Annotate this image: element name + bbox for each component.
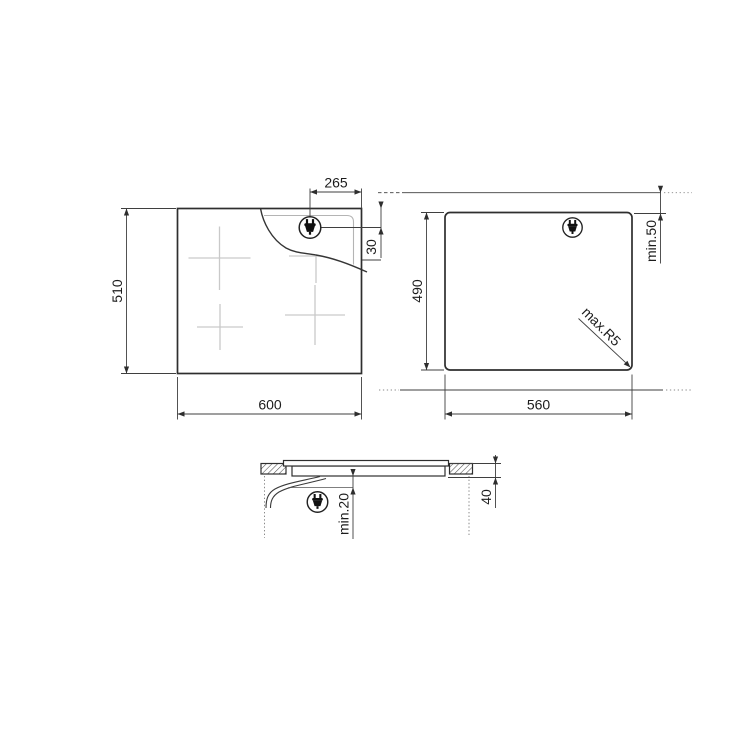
dim-label-min50: min.50 xyxy=(643,220,659,262)
dim-label-600: 600 xyxy=(258,397,282,413)
dim-label-490: 490 xyxy=(409,279,425,303)
power-plug-icon xyxy=(307,492,328,513)
dimension-cutout-width: 560 xyxy=(445,375,632,420)
dim-label-30: 30 xyxy=(363,239,379,255)
cutout-outline xyxy=(445,213,632,371)
hob-top-view: 265 30 510 600 xyxy=(109,175,384,420)
dimension-hob-depth: 510 xyxy=(109,209,176,374)
dim-label-265: 265 xyxy=(324,175,348,191)
worktop-cutout-view: 490 560 min.50 max.R5 xyxy=(378,186,692,420)
worktop-section-left xyxy=(261,464,286,475)
dimension-hob-width: 600 xyxy=(178,377,362,420)
hob-section-view: min.20 40 xyxy=(261,455,501,539)
hob-glass-section xyxy=(284,461,449,467)
installation-drawing: 265 30 510 600 xyxy=(0,0,750,750)
dim-label-40: 40 xyxy=(478,489,494,505)
hob-body-section xyxy=(292,466,445,476)
dim-label-560: 560 xyxy=(527,397,551,413)
dimension-min-edge-distance: min.50 xyxy=(634,186,666,264)
dimension-plug-offset-x: 265 xyxy=(310,175,362,209)
dim-label-min20: min.20 xyxy=(336,493,352,535)
dim-label-510: 510 xyxy=(109,279,125,303)
worktop-section-right xyxy=(450,464,473,475)
power-plug-icon xyxy=(563,218,582,237)
power-plug-icon xyxy=(299,217,321,239)
diagram-canvas: 265 30 510 600 xyxy=(0,0,750,750)
dimension-cutout-depth: 490 xyxy=(409,213,444,371)
